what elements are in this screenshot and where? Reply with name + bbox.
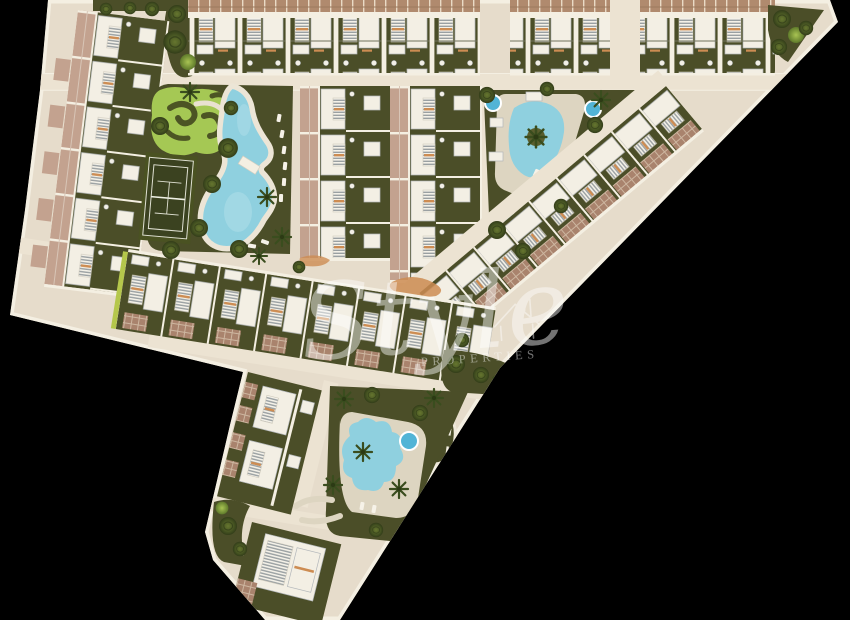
central-garden (138, 84, 293, 254)
watermark: Style PROPERTIES (296, 245, 573, 385)
master-plan-svg: Style PROPERTIES (0, 0, 850, 620)
site-plan-image: Style PROPERTIES (0, 0, 850, 620)
tennis-court (138, 152, 197, 244)
townhouse-row-top-right (640, 0, 775, 76)
pool-pergola (526, 92, 542, 101)
apartments-column-central-1 (300, 86, 392, 261)
palm-icon (526, 127, 547, 148)
road-vertical-top (610, 0, 640, 76)
townhouse-row-top-mid (510, 0, 610, 76)
townhouse-row-top-left (188, 0, 480, 76)
kids-pool (400, 432, 418, 450)
